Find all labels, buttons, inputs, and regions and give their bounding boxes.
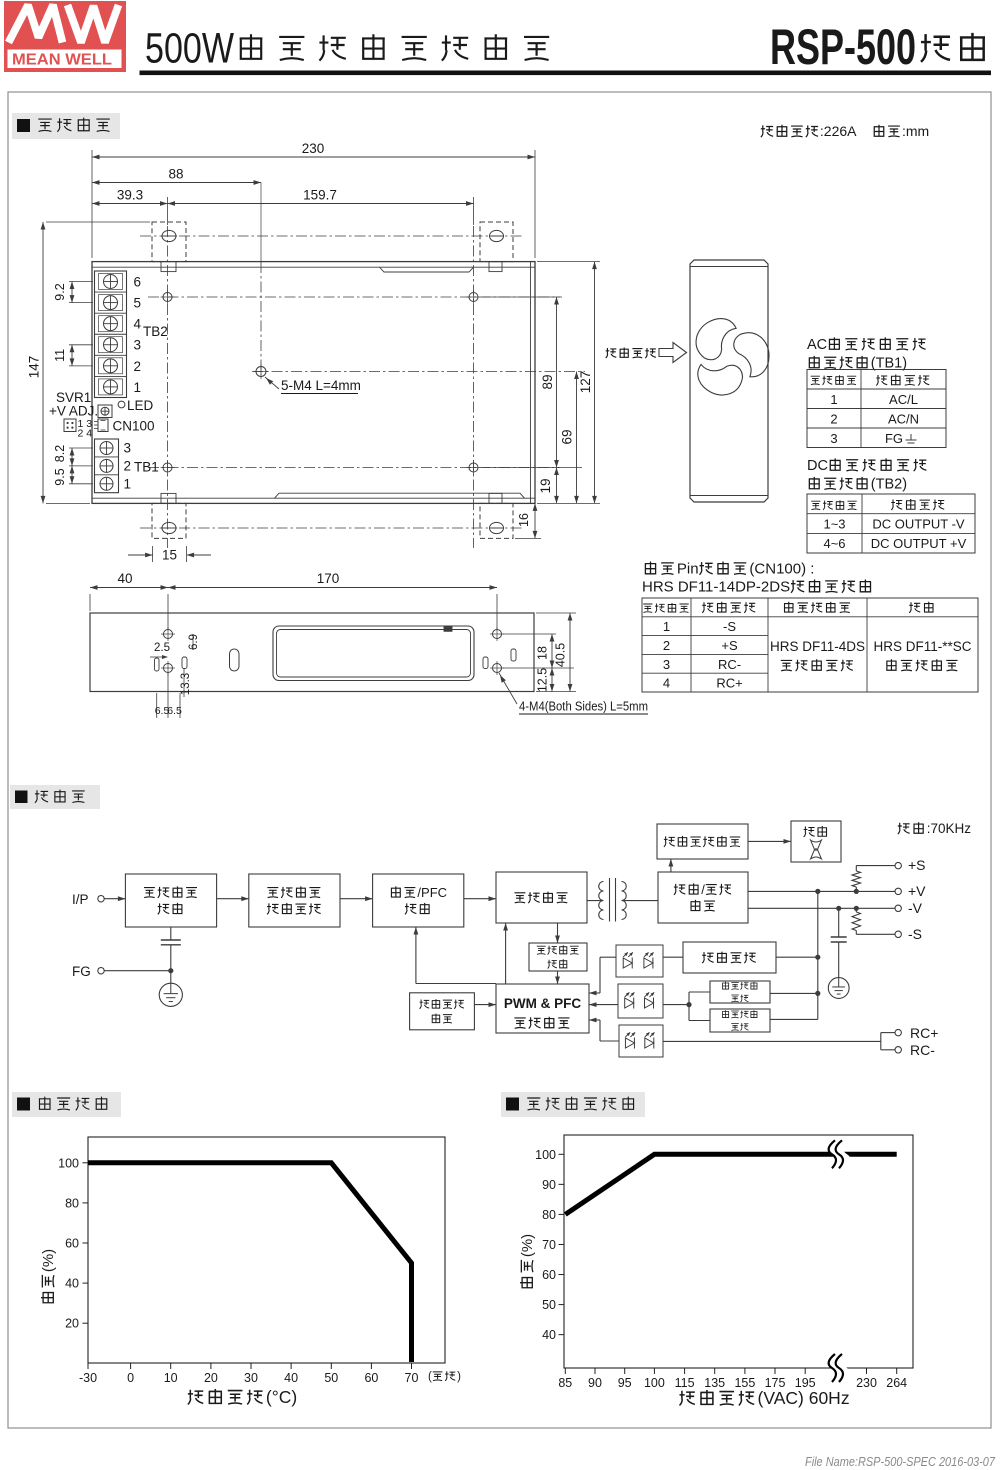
svg-text:147: 147 (27, 356, 42, 379)
svg-text:3: 3 (663, 657, 670, 672)
svg-text:90: 90 (542, 1178, 556, 1192)
svg-text:230: 230 (856, 1376, 877, 1390)
svg-text:39.3: 39.3 (117, 188, 143, 203)
svg-text:MEAN WELL: MEAN WELL (12, 51, 112, 68)
svg-text:9.5: 9.5 (53, 468, 67, 485)
svg-text:9.2: 9.2 (53, 283, 67, 300)
svg-text:19: 19 (538, 478, 553, 493)
svg-text:127: 127 (578, 371, 593, 394)
svg-text:/: / (701, 882, 705, 897)
svg-text:AC: AC (807, 337, 827, 353)
svg-text:89: 89 (540, 374, 555, 389)
svg-text:DC: DC (807, 458, 828, 474)
svg-text:1: 1 (134, 380, 142, 395)
svg-text:16: 16 (517, 513, 531, 527)
svg-text:File Name:RSP-500-SPEC 2016-0: File Name:RSP-500-SPEC 2016-03-07 (805, 1455, 996, 1469)
svg-text:100: 100 (58, 1156, 79, 1170)
svg-text:+S: +S (721, 638, 738, 653)
svg-text:/PFC: /PFC (417, 885, 447, 900)
svg-text:(: ( (428, 1371, 432, 1383)
svg-text:3: 3 (134, 338, 142, 353)
svg-text:95: 95 (618, 1376, 632, 1390)
svg-text:(%): (%) (40, 1249, 57, 1272)
svg-text:(°C): (°C) (266, 1387, 297, 1407)
svg-text:4: 4 (134, 317, 142, 332)
svg-text:40: 40 (284, 1371, 298, 1385)
svg-text:100: 100 (535, 1148, 556, 1162)
svg-text:5: 5 (134, 296, 142, 311)
svg-text:155: 155 (734, 1376, 755, 1390)
svg-text:FG: FG (72, 964, 91, 979)
svg-text:115: 115 (675, 1376, 695, 1390)
svg-text:40.5: 40.5 (554, 643, 568, 667)
svg-text:RC+: RC+ (910, 1025, 938, 1041)
svg-text:2: 2 (830, 412, 837, 427)
svg-text:70: 70 (405, 1371, 419, 1385)
svg-text:50: 50 (542, 1298, 556, 1312)
svg-text:4: 4 (663, 676, 670, 691)
svg-text:+S: +S (908, 857, 926, 873)
svg-text:500W: 500W (145, 25, 234, 73)
svg-text:18: 18 (536, 646, 550, 660)
svg-text:I/P: I/P (72, 892, 89, 907)
svg-text:230: 230 (302, 141, 325, 156)
svg-text:5-M4 L=4mm: 5-M4 L=4mm (281, 378, 361, 393)
svg-text:6.9: 6.9 (188, 634, 200, 650)
svg-text:2.5: 2.5 (154, 642, 170, 654)
svg-text:3: 3 (124, 441, 132, 456)
svg-text:135: 135 (704, 1376, 725, 1390)
svg-text:RC-: RC- (718, 657, 741, 672)
svg-text:DC OUTPUT +V: DC OUTPUT +V (871, 536, 967, 551)
svg-text:80: 80 (542, 1208, 556, 1222)
svg-text:): ) (457, 1371, 461, 1383)
svg-text:RC+: RC+ (716, 676, 742, 691)
svg-text::70KHz: :70KHz (927, 821, 972, 836)
svg-text:40: 40 (117, 571, 132, 586)
svg-text:20: 20 (65, 1317, 79, 1331)
svg-text:6.5: 6.5 (167, 705, 182, 717)
svg-text:Pin: Pin (677, 561, 699, 578)
svg-text:2: 2 (134, 359, 142, 374)
svg-text:DC OUTPUT -V: DC OUTPUT -V (872, 517, 965, 532)
svg-text:4-M4(Both Sides) L=5mm: 4-M4(Both Sides) L=5mm (519, 699, 648, 714)
svg-text:TB2: TB2 (143, 324, 168, 339)
svg-text:15: 15 (162, 548, 177, 563)
svg-text::mm: :mm (902, 123, 929, 139)
svg-text:170: 170 (317, 571, 340, 586)
svg-text:-S: -S (908, 926, 922, 942)
svg-text:60: 60 (65, 1237, 79, 1251)
svg-text:2: 2 (663, 638, 670, 653)
svg-text:6: 6 (134, 275, 142, 290)
svg-text:(CN100) :: (CN100) : (749, 561, 814, 578)
svg-text:0: 0 (127, 1371, 134, 1385)
svg-text:PWM & PFC: PWM & PFC (504, 996, 581, 1011)
svg-text:70: 70 (542, 1238, 556, 1252)
svg-text:2: 2 (124, 458, 132, 473)
svg-text::226A: :226A (820, 123, 857, 139)
svg-text:100: 100 (644, 1376, 665, 1390)
svg-text:HRS DF11-4DS: HRS DF11-4DS (770, 639, 865, 654)
svg-text:8.2: 8.2 (53, 445, 67, 462)
svg-text:90: 90 (588, 1376, 602, 1390)
svg-text:LED: LED (127, 398, 154, 413)
svg-text:HRS DF11-14DP-2DS: HRS DF11-14DP-2DS (642, 579, 790, 596)
svg-text:40: 40 (65, 1277, 79, 1291)
svg-text:+V: +V (908, 883, 926, 899)
svg-text:40: 40 (542, 1328, 556, 1342)
svg-text:12.5: 12.5 (536, 668, 550, 692)
svg-text:2 4: 2 4 (78, 428, 93, 440)
svg-text:159.7: 159.7 (303, 188, 337, 203)
svg-text:+V ADJ.: +V ADJ. (49, 404, 98, 419)
svg-text:3: 3 (830, 431, 837, 446)
svg-text:85: 85 (558, 1376, 572, 1390)
svg-text:1: 1 (830, 392, 837, 407)
svg-text:TB1: TB1 (134, 460, 159, 475)
svg-text:1~3: 1~3 (823, 517, 845, 532)
svg-text:RC-: RC- (910, 1042, 935, 1058)
svg-text:11: 11 (53, 349, 67, 362)
svg-text:1: 1 (663, 619, 670, 634)
svg-text:HRS DF11-**SC: HRS DF11-**SC (873, 639, 971, 654)
svg-text:-30: -30 (79, 1371, 97, 1385)
svg-text:264: 264 (886, 1376, 907, 1390)
svg-text:69: 69 (560, 429, 575, 444)
svg-text:(VAC) 60Hz: (VAC) 60Hz (758, 1388, 850, 1408)
svg-text:(%): (%) (519, 1234, 536, 1257)
svg-text:RSP-500: RSP-500 (770, 19, 916, 75)
svg-text:4~6: 4~6 (823, 536, 845, 551)
svg-text:(TB2): (TB2) (871, 477, 907, 493)
svg-text:50: 50 (324, 1371, 338, 1385)
svg-text:88: 88 (168, 167, 183, 182)
svg-text:60: 60 (364, 1371, 378, 1385)
svg-text:13.3: 13.3 (180, 673, 192, 695)
svg-text:-V: -V (908, 900, 923, 916)
svg-text:CN100: CN100 (113, 419, 155, 434)
svg-text:80: 80 (65, 1196, 79, 1210)
svg-text:AC/L: AC/L (889, 392, 918, 407)
svg-text:AC/N: AC/N (888, 412, 919, 427)
svg-text:1: 1 (124, 476, 132, 491)
svg-text:30: 30 (244, 1371, 258, 1385)
svg-text:-S: -S (723, 619, 736, 634)
svg-text:60: 60 (542, 1268, 556, 1282)
svg-text:10: 10 (164, 1371, 178, 1385)
svg-text:FG: FG (885, 431, 903, 446)
svg-text:20: 20 (204, 1371, 218, 1385)
